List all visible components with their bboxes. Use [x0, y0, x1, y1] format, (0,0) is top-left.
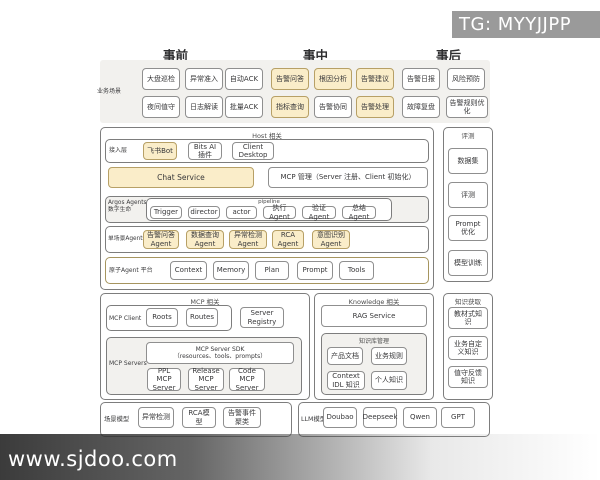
- access-item: Bits AI 插件: [188, 142, 222, 160]
- kb-item: 个人知识: [371, 371, 407, 390]
- mcp-server-box: Code MCP Server: [229, 368, 265, 391]
- scenario-box: 异常准入: [185, 68, 223, 90]
- scenario-box: 告警协同: [314, 96, 352, 118]
- pipeline-item: 验证Agent: [302, 206, 336, 219]
- scenario-box: 指标查询: [271, 96, 309, 118]
- single-agent-box: RCA Agent: [272, 230, 304, 249]
- scenario-box: 故障复盘: [402, 96, 440, 118]
- llm-model-box: Qwen: [403, 407, 437, 428]
- pipeline-item: director: [188, 206, 220, 219]
- site-watermark-text: www.sjdoo.com: [8, 447, 178, 471]
- acquisition-item: 业务自定义知识: [448, 336, 488, 360]
- evaluation-item: 模型训练: [448, 250, 488, 276]
- scenario-box: 告警规则优化: [446, 96, 488, 118]
- scene-models-label: 场景模型: [104, 416, 129, 424]
- atomic-item: Memory: [213, 261, 249, 280]
- access-layer-label: 接入层: [109, 147, 127, 155]
- pipeline-item: 总结Agent: [342, 206, 376, 219]
- scene-model-box: 异常检测: [138, 407, 174, 428]
- llm-model-box: GPT: [441, 407, 475, 428]
- scenario-box: 大盘巡检: [142, 68, 180, 90]
- scenario-box: 批量ACK: [225, 96, 263, 118]
- single-agents-label: 单场景Agents: [108, 236, 146, 243]
- diagram-canvas: { "watermarks": { "telegram": "TG: MYYJJ…: [0, 0, 600, 480]
- mcp-sdk-line1: MCP Server SDK: [196, 346, 245, 353]
- llm-model-box: Deepseek: [363, 407, 397, 428]
- scenario-box: 日志解读: [185, 96, 223, 118]
- telegram-watermark: TG: MYYJJPP: [452, 11, 600, 38]
- scenario-box: 告警建议: [356, 68, 394, 90]
- atomic-item: Tools: [339, 261, 374, 280]
- atomic-item: Context: [170, 261, 207, 280]
- acquisition-item: 教材式知识: [448, 307, 488, 329]
- mcp-client-item: Roots: [146, 308, 178, 327]
- mcp-client-item: Routes: [186, 308, 218, 327]
- evaluation-item: Prompt 优化: [448, 215, 488, 241]
- mcp-server-box: PPL MCP Server: [147, 368, 181, 391]
- single-agent-box: 异常检测Agent: [229, 230, 267, 249]
- business-scenarios-label: 业务场景: [97, 88, 121, 96]
- mcp-server-box: Release MCP Server: [188, 368, 224, 391]
- server-registry-box: Server Registry: [240, 307, 284, 328]
- single-agent-box: 告警问答Agent: [143, 230, 179, 249]
- mcp-servers-label: MCP Servers: [109, 360, 147, 368]
- rag-service-box: RAG Service: [321, 305, 427, 327]
- evaluation-panel-title: 评测: [444, 130, 492, 140]
- scenario-box: 自动ACK: [225, 68, 263, 90]
- scene-model-box: 告警事件聚类: [223, 407, 261, 428]
- scenario-box: 根因分析: [314, 68, 352, 90]
- evaluation-item: 评测: [448, 182, 488, 208]
- pipeline-item: Trigger: [150, 206, 182, 219]
- pipeline-item: 执行Agent: [263, 206, 296, 219]
- scene-model-box: RCA模型: [182, 407, 216, 428]
- mcp-client-label: MCP Client: [109, 315, 141, 323]
- kb-item: 业务规则: [371, 347, 407, 365]
- single-agent-box: 意图识别Agent: [312, 230, 350, 249]
- acquisition-item: 值守反馈知识: [448, 366, 488, 388]
- mcp-sdk-box: MCP Server SDK （resources、tools、prompts）: [146, 342, 294, 364]
- scenario-box: 风险预防: [447, 68, 485, 90]
- atomic-item: Prompt: [297, 261, 333, 280]
- chat-service-box: Chat Service: [108, 167, 254, 188]
- scenario-box: 告警问答: [271, 68, 309, 90]
- kb-item: Context IDL 知识: [327, 371, 365, 390]
- single-agent-box: 数据查询Agent: [186, 230, 224, 249]
- atomic-item: Plan: [255, 261, 289, 280]
- scenario-box: 告警处理: [356, 96, 394, 118]
- acquisition-panel-title: 知识获取: [444, 296, 492, 306]
- access-item: 飞书Bot: [143, 142, 177, 160]
- site-watermark-band: www.sjdoo.com: [0, 434, 600, 480]
- scenario-box: 夜间值守: [142, 96, 180, 118]
- mcp-manage-box: MCP 管理（Server 注册、Client 初始化）: [268, 167, 428, 188]
- argos-agents-label-line1: Argos Agents: [108, 200, 147, 206]
- atomic-agent-label: 原子Agent 平台: [109, 267, 153, 275]
- scenario-box: 告警日报: [402, 68, 440, 90]
- pipeline-item: actor: [226, 206, 257, 219]
- mcp-sdk-line2: （resources、tools、prompts）: [174, 353, 267, 360]
- kb-item: 产品文档: [327, 347, 363, 365]
- access-item: Client Desktop: [232, 142, 274, 160]
- argos-agents-label-line2: 数字生命: [108, 207, 131, 213]
- llm-model-box: Doubao: [323, 407, 357, 428]
- kb-management-title: 知识库管理: [322, 336, 426, 345]
- evaluation-item: 数据集: [448, 148, 488, 174]
